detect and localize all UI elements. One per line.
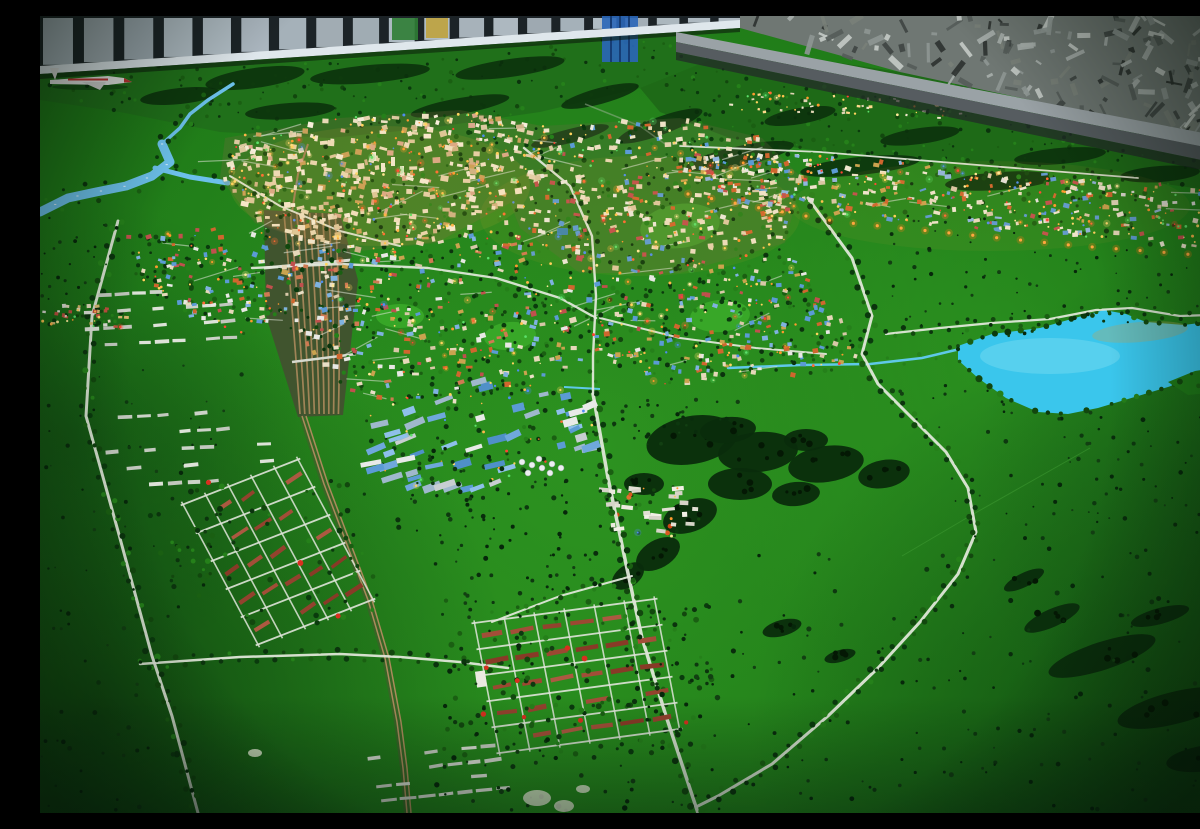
scale-model-photograph bbox=[40, 16, 1200, 813]
city-scale-model-scene bbox=[40, 16, 1200, 813]
photo-vignette bbox=[40, 16, 1200, 813]
